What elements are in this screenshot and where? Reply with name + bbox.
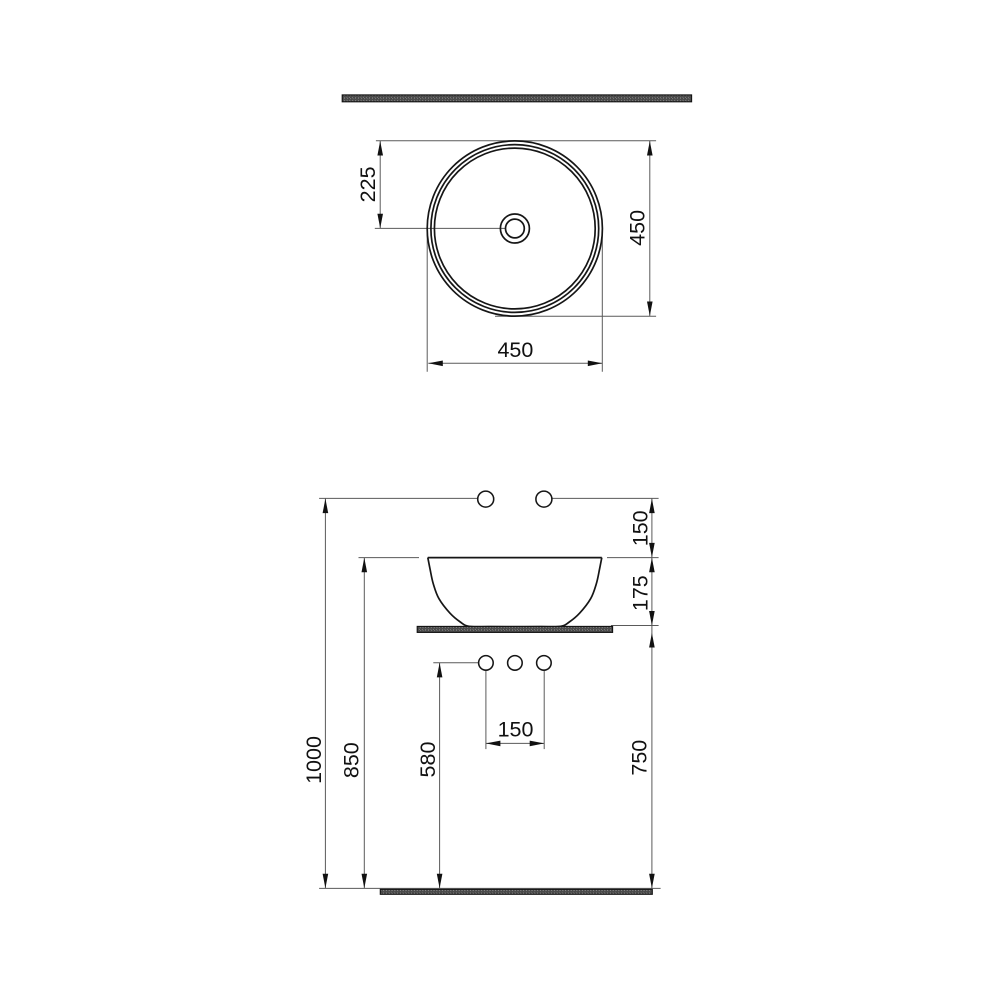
- svg-text:1000: 1000: [302, 736, 326, 784]
- svg-text:850: 850: [339, 742, 363, 778]
- svg-text:580: 580: [416, 742, 440, 778]
- svg-text:150: 150: [629, 510, 653, 546]
- svg-text:175: 175: [629, 575, 653, 611]
- svg-text:225: 225: [356, 166, 380, 202]
- svg-text:450: 450: [625, 210, 649, 246]
- svg-text:150: 150: [498, 718, 534, 742]
- svg-text:450: 450: [497, 338, 533, 362]
- svg-text:750: 750: [628, 740, 652, 776]
